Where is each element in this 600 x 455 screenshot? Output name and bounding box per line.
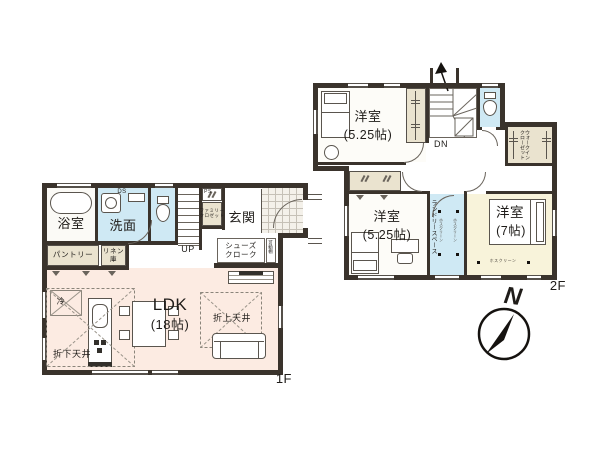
wall bbox=[214, 263, 283, 268]
sofa-back-line bbox=[214, 341, 264, 342]
hoist-point bbox=[456, 210, 459, 213]
room-size-bedroom2: (5.25帖) bbox=[345, 228, 429, 243]
wall bbox=[318, 162, 406, 165]
linen-line2: 庫 bbox=[110, 256, 117, 263]
wall bbox=[505, 163, 552, 166]
room-label-washroom: 洗面 bbox=[98, 219, 148, 234]
room-label-bedroom3: 洋室 bbox=[480, 204, 540, 222]
floor2-label: 2F bbox=[534, 279, 566, 293]
hanger-mark bbox=[356, 195, 364, 200]
stairs-up bbox=[178, 188, 199, 246]
bed-pillow bbox=[324, 93, 347, 104]
wall bbox=[42, 241, 178, 245]
duct-space-label: DS bbox=[112, 188, 132, 196]
room-size-bedroom1: (5.25帖) bbox=[326, 128, 410, 143]
wall bbox=[199, 226, 225, 229]
toilet-icon bbox=[157, 196, 169, 204]
hanger-tick bbox=[411, 103, 420, 104]
door-arc bbox=[402, 172, 422, 192]
wall bbox=[496, 127, 505, 130]
bed-pillow bbox=[353, 260, 377, 271]
hanger-pipe bbox=[415, 91, 416, 140]
hanger-mark bbox=[52, 271, 60, 276]
refrigerator-label: 冷 bbox=[52, 296, 70, 308]
movable-shelf-label: 可動棚 bbox=[268, 240, 273, 254]
wall bbox=[500, 83, 505, 127]
wall bbox=[552, 122, 557, 280]
stairs-up-label: UP bbox=[174, 245, 202, 255]
shoe-closet-label: シューズ クローク bbox=[217, 241, 265, 260]
wall bbox=[278, 233, 283, 375]
washbasin-bowl bbox=[105, 197, 117, 209]
pipe-space-label: PS bbox=[202, 189, 214, 196]
room-size-bedroom3: (7帖) bbox=[483, 224, 539, 239]
porch-step bbox=[308, 194, 322, 195]
wall bbox=[349, 191, 427, 194]
hanger-tick bbox=[509, 138, 518, 139]
chair bbox=[397, 253, 413, 264]
dining-chair bbox=[119, 330, 130, 340]
wall bbox=[486, 191, 552, 194]
hanger-tick bbox=[509, 141, 518, 142]
door-arc bbox=[482, 130, 498, 146]
stairs-down bbox=[429, 88, 477, 138]
family-closet-label: ファミリー クロゼット bbox=[202, 204, 222, 224]
room-size-ldk: (18帖) bbox=[138, 317, 202, 333]
plant-pot bbox=[324, 145, 339, 160]
room-label-ldk: LDK bbox=[140, 295, 200, 315]
linen-line1: リネン bbox=[103, 248, 124, 255]
wall bbox=[500, 122, 557, 127]
door-arc bbox=[466, 172, 486, 192]
stairs-down-label: DN bbox=[429, 139, 453, 150]
hanger-pipe bbox=[546, 131, 547, 159]
lowered-ceiling-label: 折下天井 bbox=[46, 349, 98, 361]
wic-label: ウォークイン クローゼット bbox=[519, 130, 529, 160]
entrance-step-line bbox=[261, 189, 262, 233]
hanger-tick bbox=[542, 141, 551, 142]
hoist-point bbox=[527, 261, 530, 264]
laundry-label: ランドリースペース bbox=[430, 200, 436, 254]
hoist-point bbox=[438, 253, 441, 256]
wall bbox=[505, 127, 508, 166]
room-label-pantry: パントリー bbox=[47, 248, 99, 262]
porch-step bbox=[308, 243, 322, 244]
tv bbox=[239, 271, 263, 275]
wall bbox=[175, 188, 178, 245]
window-symbol bbox=[482, 83, 498, 88]
porch-step bbox=[308, 199, 322, 200]
window-symbol bbox=[552, 210, 557, 236]
hoist-label: ホスクリーン bbox=[453, 218, 457, 242]
family-closet-line2: クロゼット bbox=[200, 214, 225, 219]
wall bbox=[303, 183, 308, 200]
room-label-entrance: 玄関 bbox=[223, 210, 261, 226]
bed-line bbox=[352, 252, 378, 253]
window-symbol bbox=[358, 275, 394, 280]
wall bbox=[148, 188, 151, 241]
floor1-label: 1F bbox=[260, 372, 292, 386]
room-label-bedroom1: 洋室 bbox=[338, 109, 398, 126]
wall bbox=[456, 68, 459, 83]
wall bbox=[126, 245, 129, 266]
sofa-arm-line bbox=[258, 342, 259, 358]
hanger-tick bbox=[411, 127, 420, 128]
hoist-label: ホスクリーン bbox=[439, 218, 443, 242]
hanger-mark bbox=[380, 195, 388, 200]
hoist-point bbox=[438, 210, 441, 213]
wall bbox=[42, 266, 129, 270]
hoist-point bbox=[456, 253, 459, 256]
toilet-icon bbox=[484, 92, 496, 99]
wic-line2: クローゼット bbox=[519, 130, 524, 160]
window-symbol bbox=[152, 370, 178, 375]
porch-step bbox=[308, 238, 322, 239]
compass-north-label: N bbox=[496, 282, 529, 312]
floor-plan-canvas: 浴室 洗面 DS UP PS ファミリー クロゼット 玄関 シューズ クローク … bbox=[0, 0, 600, 455]
wall bbox=[278, 233, 308, 238]
window-symbol bbox=[278, 306, 283, 328]
window-symbol bbox=[384, 83, 400, 88]
room-label-bedroom2: 洋室 bbox=[357, 209, 417, 226]
window-symbol bbox=[57, 183, 91, 188]
wall bbox=[430, 68, 433, 83]
hanger-tick bbox=[411, 124, 420, 125]
window-symbol bbox=[155, 183, 173, 188]
room-label-linen: リネン 庫 bbox=[101, 246, 126, 265]
wall bbox=[426, 88, 429, 143]
hanger-tick bbox=[542, 138, 551, 139]
hanger-mark bbox=[108, 271, 116, 276]
room-label-bath: 浴室 bbox=[47, 217, 95, 232]
hanger-pipe bbox=[513, 131, 514, 159]
wall bbox=[464, 191, 467, 275]
window-symbol bbox=[92, 370, 148, 375]
hanger-tick bbox=[411, 100, 420, 101]
window-symbol bbox=[435, 275, 459, 280]
window-symbol bbox=[313, 110, 318, 134]
hoist-label: ホスクリーン bbox=[485, 257, 521, 265]
window-symbol bbox=[348, 83, 368, 88]
raised-ceiling-label: 折上天井 bbox=[206, 313, 258, 325]
bathtub bbox=[50, 192, 92, 214]
dining-chair bbox=[119, 306, 130, 316]
wall bbox=[477, 88, 480, 130]
hoist-point bbox=[477, 261, 480, 264]
window-symbol bbox=[481, 275, 501, 280]
sofa-arm-line bbox=[220, 342, 221, 358]
closet2-floor bbox=[349, 171, 401, 191]
hanger-mark bbox=[82, 271, 90, 276]
shoe-closet-line2: クローク bbox=[225, 251, 257, 259]
